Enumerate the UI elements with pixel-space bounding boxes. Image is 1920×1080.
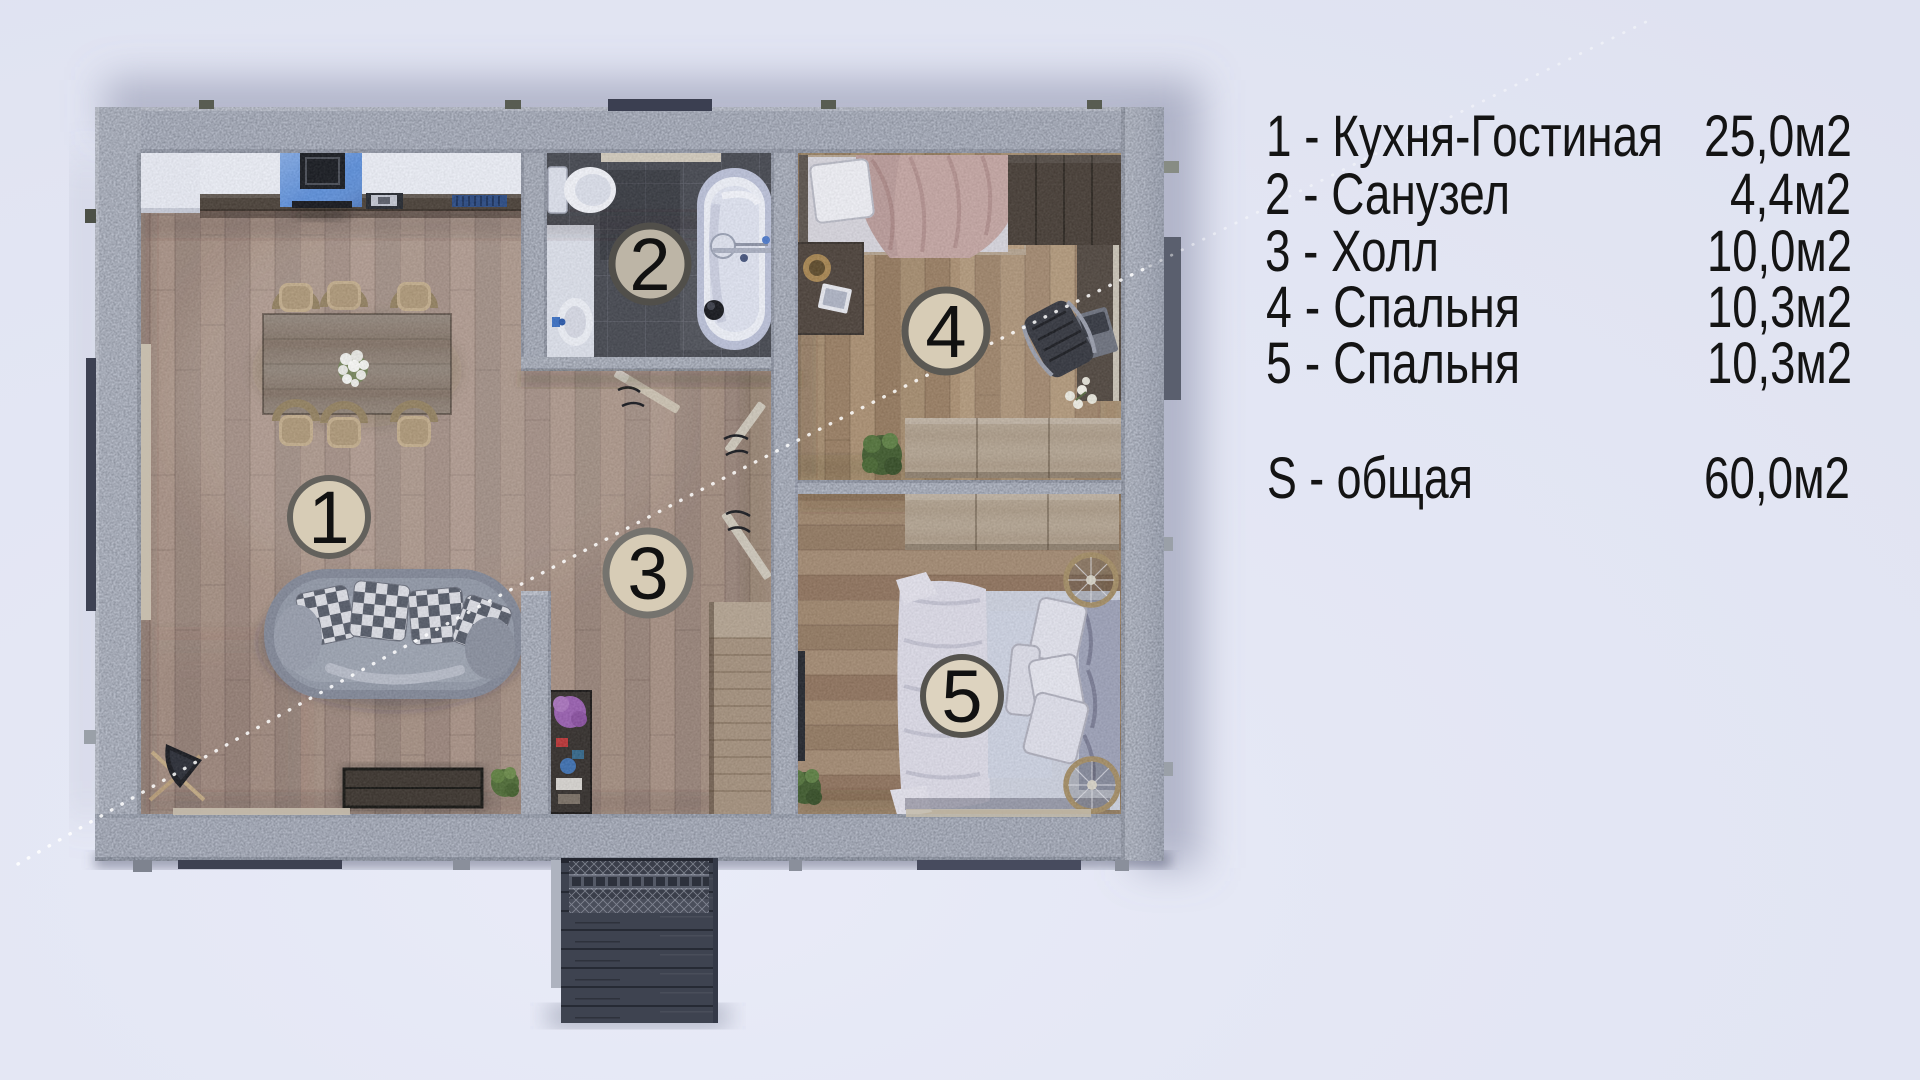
svg-text:S - общая: S - общая bbox=[1267, 446, 1473, 511]
svg-text:25,0м2: 25,0м2 bbox=[1704, 104, 1852, 169]
svg-text:1 - Кухня-Гостиная: 1 - Кухня-Гостиная bbox=[1266, 104, 1663, 169]
svg-text:2: 2 bbox=[629, 223, 670, 306]
svg-text:5: 5 bbox=[941, 655, 982, 738]
svg-text:2 - Санузел: 2 - Санузел bbox=[1265, 162, 1510, 227]
svg-text:3: 3 bbox=[627, 532, 668, 615]
svg-text:10,3м2: 10,3м2 bbox=[1707, 331, 1852, 396]
svg-text:4,4м2: 4,4м2 bbox=[1730, 162, 1851, 227]
svg-text:5 - Спальня: 5 - Спальня bbox=[1266, 331, 1520, 396]
svg-text:4: 4 bbox=[925, 290, 966, 373]
svg-text:60,0м2: 60,0м2 bbox=[1704, 446, 1850, 511]
svg-text:1: 1 bbox=[308, 476, 349, 559]
